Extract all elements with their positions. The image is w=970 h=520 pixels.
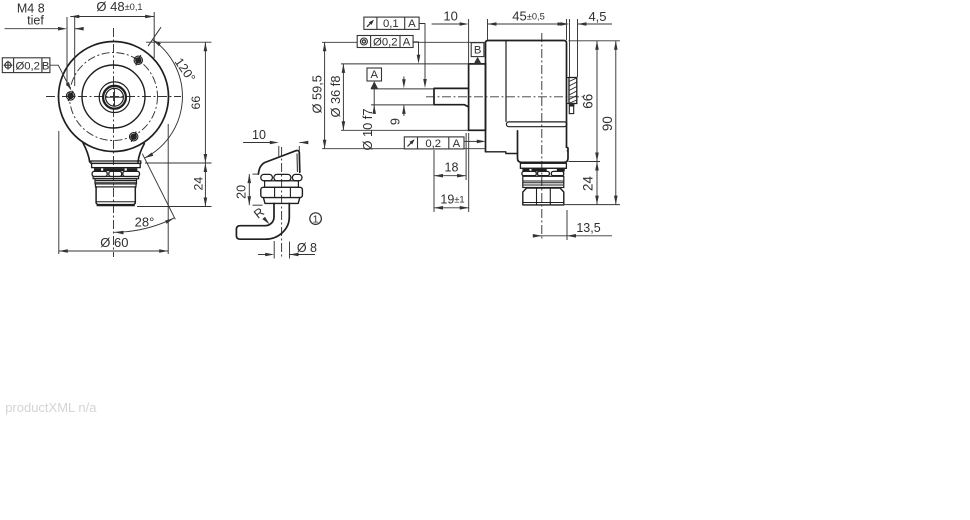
svg-text:13,5: 13,5	[576, 221, 600, 235]
svg-text:A: A	[408, 18, 416, 30]
svg-text:Ø 48±0,1: Ø 48±0,1	[96, 0, 142, 14]
svg-text:66: 66	[581, 94, 596, 109]
svg-text:B: B	[474, 45, 482, 57]
svg-text:tief: tief	[27, 14, 44, 28]
svg-text:Ø 8: Ø 8	[297, 241, 317, 255]
svg-text:4,5: 4,5	[588, 9, 606, 24]
svg-text:24: 24	[581, 176, 596, 191]
svg-text:Ø0,2: Ø0,2	[373, 36, 398, 48]
svg-text:45±0,5: 45±0,5	[512, 8, 545, 23]
svg-text:90: 90	[600, 116, 615, 131]
svg-text:10: 10	[443, 8, 457, 23]
svg-text:A: A	[371, 69, 379, 81]
svg-text:A: A	[403, 36, 411, 48]
svg-text:1: 1	[313, 213, 319, 225]
svg-text:66: 66	[189, 96, 203, 110]
svg-text:Ø0,2: Ø0,2	[15, 60, 40, 72]
svg-text:24: 24	[191, 177, 205, 191]
svg-text:20: 20	[235, 185, 249, 199]
svg-text:Ø 36 f8: Ø 36 f8	[328, 76, 343, 118]
svg-text:0,2: 0,2	[425, 138, 441, 150]
svg-text:18: 18	[445, 160, 459, 174]
svg-text:28°: 28°	[135, 214, 155, 229]
svg-text:B: B	[42, 60, 50, 72]
svg-text:Ø 60: Ø 60	[100, 235, 128, 250]
svg-text:9: 9	[387, 118, 402, 125]
svg-text:Ø 59,5: Ø 59,5	[310, 75, 325, 113]
svg-text:10: 10	[252, 128, 266, 142]
svg-text:19±1: 19±1	[440, 193, 464, 207]
svg-text:0,1: 0,1	[383, 18, 399, 30]
svg-text:productXML n/a: productXML n/a	[5, 400, 97, 415]
svg-text:Ø 10 f7: Ø 10 f7	[360, 109, 375, 151]
svg-text:A: A	[453, 138, 461, 150]
